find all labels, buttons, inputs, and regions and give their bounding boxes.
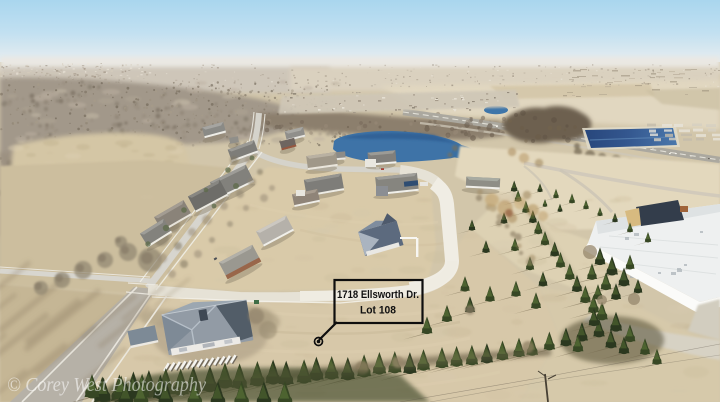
svg-text:© Corey West Photography: © Corey West Photography xyxy=(7,375,206,396)
svg-text:Lot 108: Lot 108 xyxy=(360,305,396,317)
svg-text:1718 Ellsworth Dr.: 1718 Ellsworth Dr. xyxy=(337,289,419,301)
